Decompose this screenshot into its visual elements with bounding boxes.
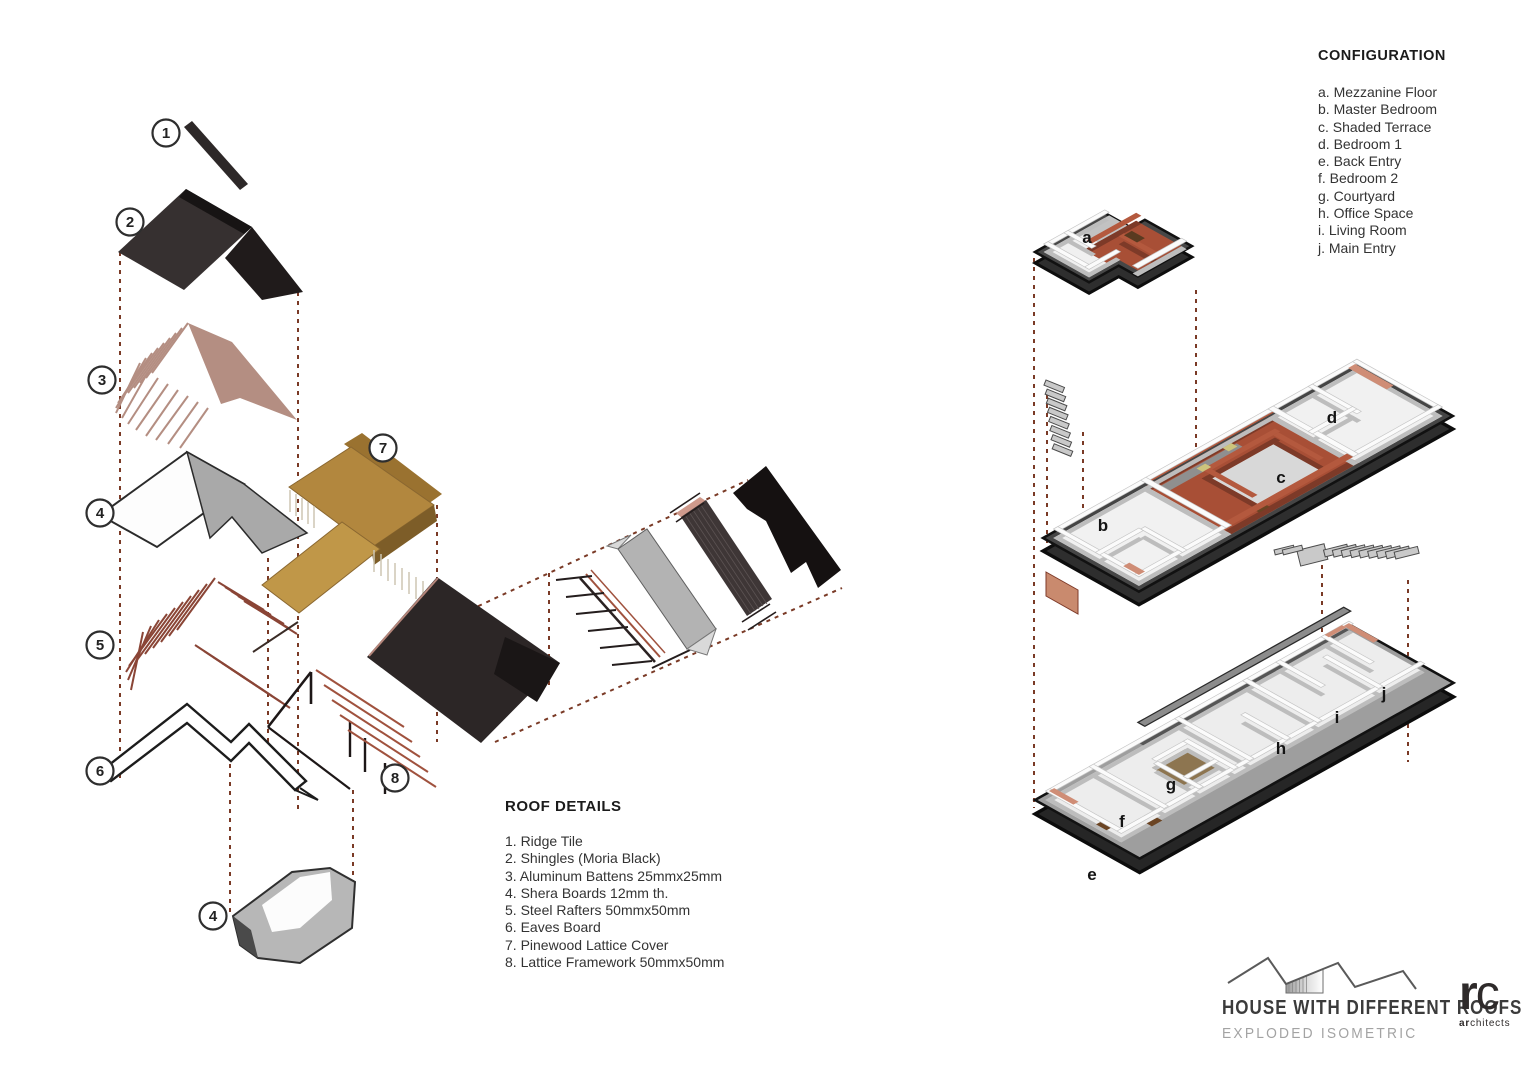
config-item-h: h. Office Space (1318, 205, 1528, 222)
steel-rafters-shape (126, 578, 298, 708)
roof-detail-item-7: 7. Pinewood Lattice Cover (505, 937, 765, 954)
roof-detail-item-3: 3. Aluminum Battens 25mmx25mm (505, 868, 765, 885)
firm-logo: rc architects (1459, 972, 1510, 1029)
roof-details-legend: ROOF DETAILS 1. Ridge Tile 2. Shingles (… (505, 798, 765, 971)
config-item-g: g. Courtyard (1318, 188, 1528, 205)
room-label-d: d (1327, 408, 1337, 427)
house-exploded-isometric: a b c d e f g h i j (1023, 203, 1454, 884)
firm-name: architects (1459, 1018, 1510, 1029)
config-item-j: j. Main Entry (1318, 240, 1528, 257)
configuration-title: CONFIGURATION (1318, 48, 1528, 64)
config-item-c: c. Shaded Terrace (1318, 119, 1528, 136)
eaves-board-shape (100, 704, 318, 800)
roof-detail-item-4: 4. Shera Boards 12mm th. (505, 885, 765, 902)
roof-detail-item-2: 2. Shingles (Moria Black) (505, 850, 765, 867)
firm-name-rest: chitects (1470, 1018, 1510, 1029)
callout-8: 8 (382, 765, 409, 792)
room-label-a: a (1082, 228, 1092, 247)
callout-3: 3 (89, 367, 116, 394)
callout-7: 7 (370, 435, 397, 462)
room-label-i: i (1335, 708, 1340, 727)
terracotta-porch (1046, 572, 1078, 614)
config-item-d: d. Bedroom 1 (1318, 136, 1528, 153)
callout-5: 5 (87, 632, 114, 659)
configuration-legend: CONFIGURATION a. Mezzanine Floor b. Mast… (1318, 48, 1528, 257)
config-item-b: b. Master Bedroom (1318, 101, 1528, 118)
roof-detail-item-1: 1. Ridge Tile (505, 833, 765, 850)
callout-6: 6 (87, 758, 114, 785)
callout-4: 4 (87, 500, 114, 527)
architectural-sheet: 1 2 3 4 5 6 7 8 4 (0, 0, 1536, 1086)
floor-middle (1043, 359, 1453, 614)
callout-7-label: 7 (379, 440, 387, 457)
config-item-f: f. Bedroom 2 (1318, 170, 1528, 187)
callout-1: 1 (153, 120, 180, 147)
roof-details-list: 1. Ridge Tile 2. Shingles (Moria Black) … (505, 833, 765, 971)
config-item-i: i. Living Room (1318, 222, 1528, 239)
roof-detail-item-8: 8. Lattice Framework 50mmx50mm (505, 954, 765, 971)
room-label-g: g (1166, 775, 1176, 794)
callout-2: 2 (117, 209, 144, 236)
room-label-b: b (1098, 516, 1108, 535)
roof-detail-item-6: 6. Eaves Board (505, 919, 765, 936)
callout-3-label: 3 (98, 372, 106, 389)
room-label-c: c (1276, 468, 1285, 487)
callout-2-label: 2 (126, 214, 134, 231)
roof-detail-item-5: 5. Steel Rafters 50mmx50mm (505, 902, 765, 919)
firm-initial-c: c (1476, 967, 1498, 1020)
callout-8-label: 8 (391, 770, 399, 787)
configuration-list: a. Mezzanine Floor b. Master Bedroom c. … (1318, 84, 1528, 257)
firm-initial-r: r (1459, 967, 1476, 1020)
callout-6-label: 6 (96, 763, 104, 780)
roof-section-exploded-strip (556, 466, 841, 668)
room-label-e: e (1087, 865, 1096, 884)
exploded-isometric-drawing: 1 2 3 4 5 6 7 8 4 (0, 0, 1536, 1086)
shera-board-curved-shape (233, 868, 355, 963)
callout-4b-label: 4 (209, 908, 218, 925)
roofline-logo (1228, 958, 1416, 993)
callout-4b: 4 (200, 903, 227, 930)
ridge-tile-shape (184, 121, 248, 190)
assembled-shingle-roof-shape (367, 577, 560, 743)
callout-1-label: 1 (162, 125, 170, 142)
floor-mezzanine (1035, 203, 1192, 304)
gray-board-piece (607, 529, 716, 655)
roof-details-title: ROOF DETAILS (505, 798, 765, 815)
shingles-shape (118, 189, 303, 300)
room-label-j: j (1381, 684, 1387, 703)
config-item-a: a. Mezzanine Floor (1318, 84, 1528, 101)
floor-ground (1035, 607, 1454, 872)
shera-boards-shape (100, 452, 307, 553)
callout-4-label: 4 (96, 505, 105, 522)
room-label-f: f (1119, 812, 1125, 831)
aluminum-battens-shape (116, 323, 297, 448)
firm-name-bold: ar (1459, 1018, 1470, 1029)
callout-5-label: 5 (96, 637, 104, 654)
room-label-h: h (1276, 739, 1286, 758)
stair-lower (1274, 516, 1419, 587)
config-item-e: e. Back Entry (1318, 153, 1528, 170)
firm-initials: rc (1459, 972, 1510, 1016)
